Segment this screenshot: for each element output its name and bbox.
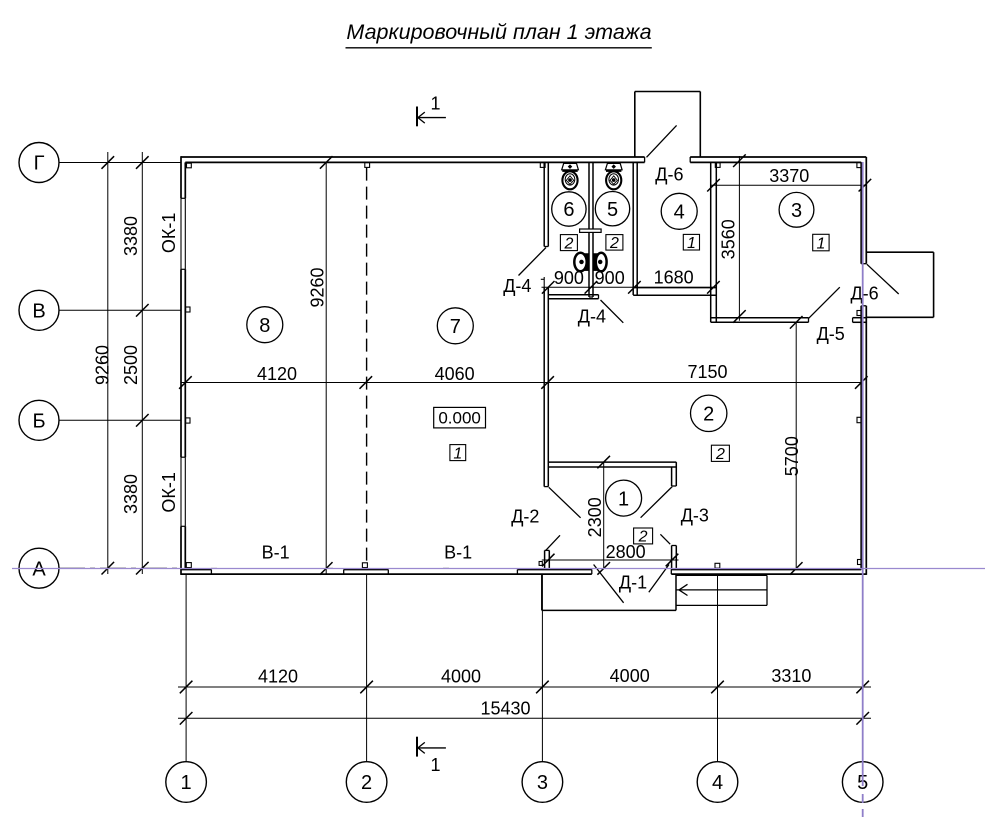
svg-text:4: 4 <box>712 772 723 794</box>
svg-text:1: 1 <box>618 488 629 510</box>
svg-text:1: 1 <box>430 755 440 775</box>
svg-text:ОК-1: ОК-1 <box>159 213 179 254</box>
svg-text:2: 2 <box>715 446 725 463</box>
svg-text:Д-1: Д-1 <box>619 572 647 592</box>
svg-text:900: 900 <box>554 268 584 288</box>
svg-text:Д-5: Д-5 <box>817 324 845 344</box>
svg-text:2: 2 <box>703 404 714 426</box>
svg-text:4120: 4120 <box>258 667 298 687</box>
svg-text:2500: 2500 <box>121 345 141 385</box>
svg-text:Д-4: Д-4 <box>578 306 606 326</box>
svg-text:8: 8 <box>259 315 270 337</box>
svg-text:Маркировочный план 1 этажа: Маркировочный план 1 этажа <box>346 20 651 44</box>
svg-text:3310: 3310 <box>771 666 811 686</box>
svg-text:6: 6 <box>563 199 574 221</box>
svg-text:3560: 3560 <box>718 219 738 259</box>
svg-text:Д-2: Д-2 <box>511 506 539 526</box>
svg-text:Д-6: Д-6 <box>850 283 878 303</box>
svg-text:1: 1 <box>453 445 462 462</box>
svg-text:2300: 2300 <box>585 497 605 537</box>
svg-text:3: 3 <box>537 772 548 794</box>
svg-text:900: 900 <box>595 268 625 288</box>
svg-text:5700: 5700 <box>782 436 802 476</box>
svg-text:В-1: В-1 <box>262 542 290 562</box>
svg-text:3380: 3380 <box>121 216 141 256</box>
svg-text:9260: 9260 <box>307 267 327 307</box>
svg-text:Д-6: Д-6 <box>655 165 683 185</box>
svg-text:А: А <box>32 558 46 580</box>
svg-text:3370: 3370 <box>769 166 809 186</box>
svg-text:Б: Б <box>32 411 45 433</box>
svg-text:2: 2 <box>638 529 648 546</box>
svg-text:В-1: В-1 <box>444 542 472 562</box>
svg-text:Г: Г <box>34 153 45 175</box>
svg-text:ОК-1: ОК-1 <box>159 472 179 513</box>
svg-text:2: 2 <box>609 235 619 252</box>
svg-text:В: В <box>32 301 45 323</box>
svg-text:3: 3 <box>791 200 802 222</box>
svg-text:4000: 4000 <box>441 667 481 687</box>
svg-text:1: 1 <box>430 93 440 113</box>
svg-text:1680: 1680 <box>654 267 694 287</box>
svg-text:Д-4: Д-4 <box>503 276 531 296</box>
svg-text:15430: 15430 <box>480 698 530 718</box>
svg-text:4060: 4060 <box>435 364 475 384</box>
svg-text:1: 1 <box>181 772 192 794</box>
svg-text:9260: 9260 <box>92 345 112 385</box>
svg-text:5: 5 <box>607 199 618 221</box>
svg-text:7: 7 <box>450 316 461 338</box>
svg-text:4120: 4120 <box>257 364 297 384</box>
svg-text:3380: 3380 <box>121 474 141 514</box>
svg-text:0.000: 0.000 <box>438 409 481 428</box>
svg-text:2: 2 <box>563 235 573 252</box>
svg-text:Д-3: Д-3 <box>681 506 709 526</box>
svg-text:4000: 4000 <box>610 666 650 686</box>
svg-text:1: 1 <box>687 235 696 252</box>
svg-text:4: 4 <box>674 202 685 224</box>
svg-text:7150: 7150 <box>687 362 727 382</box>
svg-text:2: 2 <box>361 772 372 794</box>
svg-text:1: 1 <box>816 235 825 252</box>
